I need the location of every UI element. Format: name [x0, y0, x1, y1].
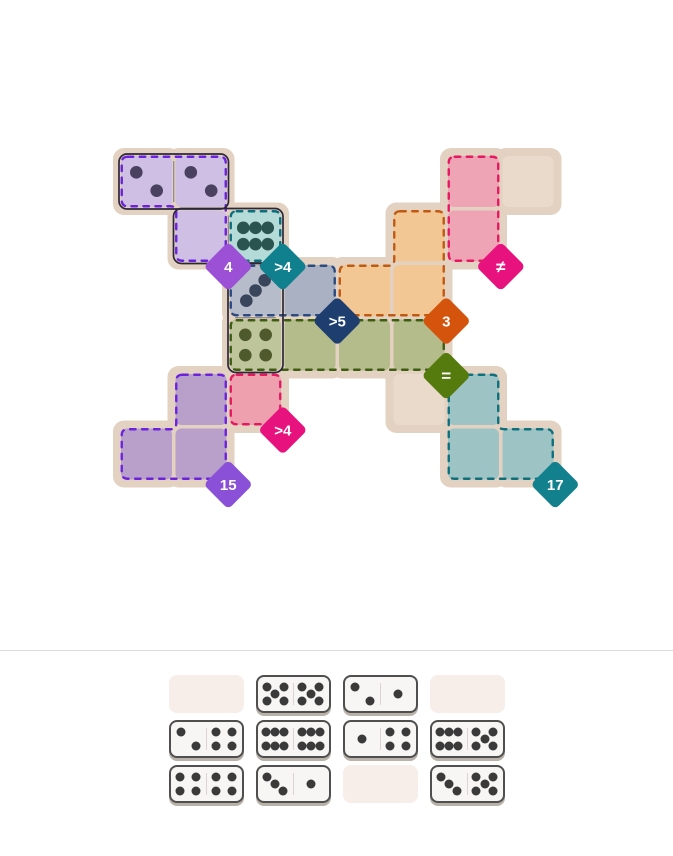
domino-half-divider [206, 728, 207, 750]
pip [436, 741, 445, 750]
badge-label: >5 [329, 313, 346, 330]
pip [280, 728, 289, 737]
pip [192, 773, 201, 782]
tray-domino-3-5[interactable] [430, 765, 505, 803]
pip [191, 741, 200, 750]
pip [315, 697, 324, 706]
pip [263, 772, 272, 781]
domino-half-divider [467, 728, 468, 750]
domino-half-divider [293, 728, 294, 750]
tray-slot-empty [430, 675, 505, 713]
pip [249, 284, 262, 297]
domino-half-3 [432, 767, 468, 801]
tray-domino-6-6[interactable] [256, 720, 331, 758]
pip [271, 741, 280, 750]
pip [437, 772, 446, 781]
pip [262, 741, 271, 750]
pip [262, 682, 271, 691]
pip [385, 741, 394, 750]
domino-tray [0, 675, 673, 803]
pip [453, 787, 462, 796]
board-cell-orange[interactable] [394, 211, 445, 262]
badge-label: ≠ [496, 258, 506, 277]
domino-half-4 [206, 767, 242, 801]
tray-domino-3-1[interactable] [256, 765, 331, 803]
domino-half-4 [171, 767, 207, 801]
tray-domino-2-4[interactable] [169, 720, 244, 758]
badge-label: 17 [547, 477, 564, 494]
pip [227, 773, 236, 782]
domino-half-divider [467, 773, 468, 795]
pip [298, 697, 307, 706]
domino-half-5 [293, 677, 329, 711]
pip [472, 787, 481, 796]
covered-cell [230, 320, 281, 371]
tray-row [169, 720, 505, 758]
domino-half-divider [380, 728, 381, 750]
pip [454, 728, 463, 737]
domino-half-4 [380, 722, 416, 756]
badge-label: 15 [220, 477, 237, 494]
tray-domino-6-5[interactable] [430, 720, 505, 758]
badge-label: 4 [224, 259, 233, 276]
domino-half-6 [293, 722, 329, 756]
pip [130, 166, 143, 179]
pip [480, 735, 489, 744]
pip [306, 690, 315, 699]
tray-domino-2-1[interactable] [343, 675, 418, 713]
pip [472, 772, 481, 781]
game-board: 4>4>53≠=15>417 [0, 0, 673, 655]
pip [489, 742, 498, 751]
badge-label: 3 [442, 313, 450, 330]
pip [259, 329, 272, 342]
pip [298, 682, 307, 691]
pip [297, 741, 306, 750]
game-stage: 4>4>53≠=15>417 [0, 0, 673, 856]
pip [249, 222, 262, 235]
pip [261, 238, 274, 251]
domino-half-6 [258, 722, 294, 756]
pip [472, 727, 481, 736]
pip [358, 735, 367, 744]
tray-row [169, 765, 505, 803]
domino-half-2 [345, 677, 381, 711]
pip [454, 741, 463, 750]
pip [192, 786, 201, 795]
board-cell-teal-bottom[interactable] [448, 429, 499, 480]
pip [279, 682, 288, 691]
tray-slot-empty [343, 765, 418, 803]
pip [262, 728, 271, 737]
pip [480, 780, 489, 789]
pip [176, 773, 185, 782]
covered-cell [176, 156, 227, 207]
domino-half-5 [467, 767, 503, 801]
board-cell-purple-bottom[interactable] [176, 374, 227, 425]
pip [489, 772, 498, 781]
pip [271, 780, 280, 789]
pip [271, 690, 280, 699]
pip [315, 728, 324, 737]
domino-half-divider [293, 683, 294, 705]
pip [176, 728, 185, 737]
pip [150, 184, 163, 197]
badge-label: = [441, 367, 451, 386]
domino-half-divider [206, 773, 207, 795]
domino-half-1 [293, 767, 329, 801]
pip [297, 728, 306, 737]
tray-domino-5-5[interactable] [256, 675, 331, 713]
pip [280, 741, 289, 750]
pip [227, 741, 236, 750]
pip [306, 780, 315, 789]
pip [227, 786, 236, 795]
domino-half-6 [432, 722, 468, 756]
domino-half-5 [258, 677, 294, 711]
pip [205, 184, 218, 197]
pip [240, 294, 253, 307]
pip [249, 238, 262, 251]
domino-half-5 [467, 722, 503, 756]
domino-half-1 [380, 677, 416, 711]
domino-half-divider [293, 773, 294, 795]
badge-label: >4 [274, 259, 292, 276]
domino-half-2 [171, 722, 207, 756]
pip [315, 682, 324, 691]
tray-domino-1-4[interactable] [343, 720, 418, 758]
pip [393, 690, 402, 699]
pip [472, 742, 481, 751]
tray-domino-4-4[interactable] [169, 765, 244, 803]
pip [315, 741, 324, 750]
covered-cell [121, 156, 172, 207]
pip [385, 728, 394, 737]
pip [271, 728, 280, 737]
pip [261, 222, 274, 235]
pip [211, 728, 220, 737]
domino-half-3 [258, 767, 294, 801]
domino-half-4 [206, 722, 242, 756]
pip [279, 787, 288, 796]
pip [445, 728, 454, 737]
pip [279, 697, 288, 706]
pip [401, 728, 410, 737]
pip [185, 166, 198, 179]
pip [239, 329, 252, 342]
pip [350, 683, 359, 692]
pip [401, 741, 410, 750]
pip [445, 780, 454, 789]
tray-divider [0, 650, 673, 651]
badge-label: >4 [274, 422, 292, 439]
domino-half-1 [345, 722, 381, 756]
pip [176, 786, 185, 795]
tray-row [169, 675, 505, 713]
pip [211, 773, 220, 782]
board-cell-purple-bottom[interactable] [121, 429, 172, 480]
pip [239, 349, 252, 362]
pip [262, 697, 271, 706]
pip [259, 349, 272, 362]
pip [436, 728, 445, 737]
pip [237, 238, 250, 251]
pip [489, 787, 498, 796]
domino-half-divider [380, 683, 381, 705]
tray-slot-empty [169, 675, 244, 713]
pip [227, 728, 236, 737]
board-cell-pink-top[interactable] [448, 156, 499, 207]
pip [489, 727, 498, 736]
pip [445, 741, 454, 750]
pip [365, 696, 374, 705]
board-cell[interactable] [503, 156, 554, 207]
pip [237, 222, 250, 235]
pip [211, 741, 220, 750]
pip [211, 786, 220, 795]
pip [306, 728, 315, 737]
pip [306, 741, 315, 750]
